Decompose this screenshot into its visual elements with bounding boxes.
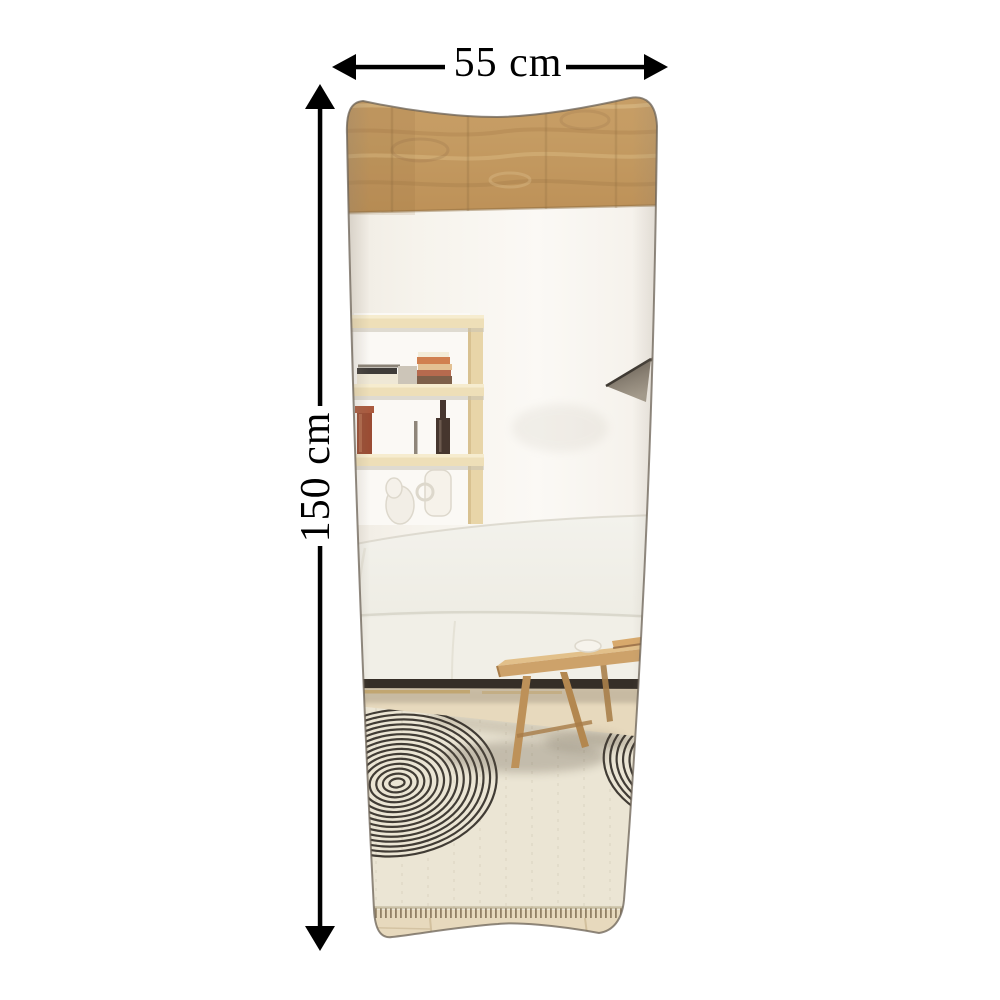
width-dimension-label: 55 cm [408, 41, 608, 85]
brass-rail [356, 690, 470, 694]
mirror-glass-edge [632, 90, 658, 950]
mirror-reflection-scene [289, 55, 793, 955]
thin-stick [414, 421, 418, 454]
sofa-base-bar [340, 679, 660, 689]
product-image-canvas: 55 cm 150 cm [0, 0, 1000, 1000]
mirror-illustration [0, 0, 1000, 1000]
height-dimension-label: 150 cm [294, 367, 338, 587]
wall-shadow [512, 404, 608, 452]
